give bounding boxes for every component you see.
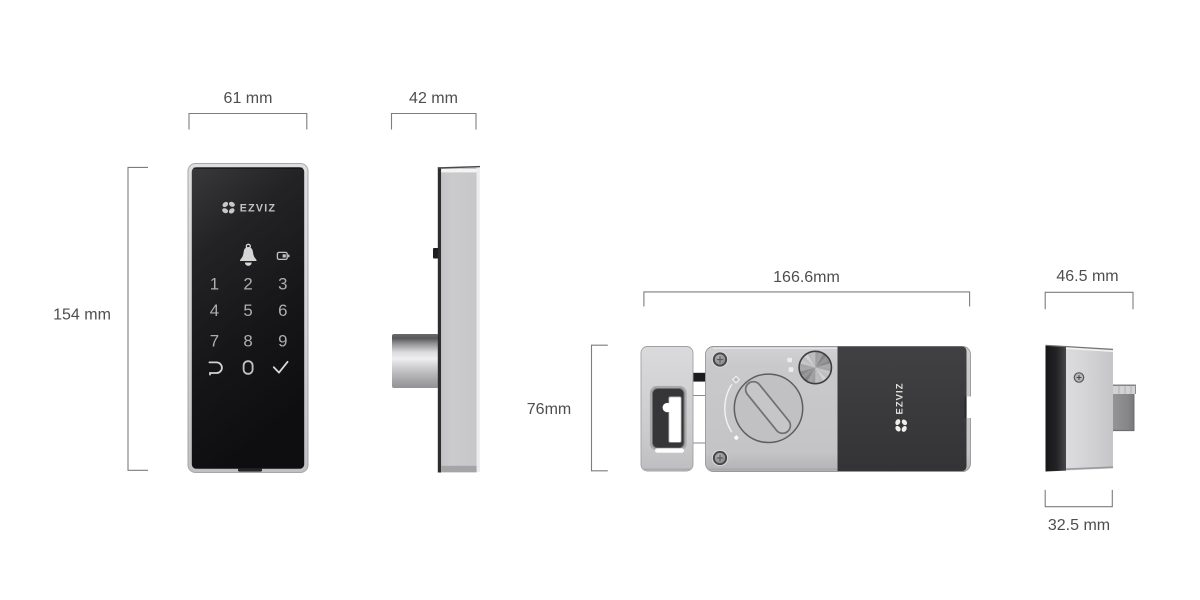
svg-text:61 mm: 61 mm <box>224 90 273 107</box>
svg-text:2: 2 <box>243 275 252 294</box>
svg-text:4: 4 <box>210 301 219 320</box>
svg-text:7: 7 <box>210 331 219 350</box>
svg-text:1: 1 <box>210 275 219 294</box>
svg-text:42 mm: 42 mm <box>409 90 458 107</box>
svg-text:3: 3 <box>278 275 287 294</box>
svg-text:154 mm: 154 mm <box>53 307 111 324</box>
svg-text:EZVIZ: EZVIZ <box>240 203 277 215</box>
svg-text:32.5 mm: 32.5 mm <box>1048 517 1110 534</box>
svg-text:46.5 mm: 46.5 mm <box>1056 268 1118 285</box>
svg-text:76mm: 76mm <box>527 401 571 418</box>
svg-text:EZVIZ: EZVIZ <box>894 382 905 414</box>
svg-text:166.6mm: 166.6mm <box>773 269 840 286</box>
svg-text:8: 8 <box>243 331 252 350</box>
svg-text:9: 9 <box>278 331 287 350</box>
svg-text:5: 5 <box>243 301 252 320</box>
svg-text:6: 6 <box>278 301 287 320</box>
